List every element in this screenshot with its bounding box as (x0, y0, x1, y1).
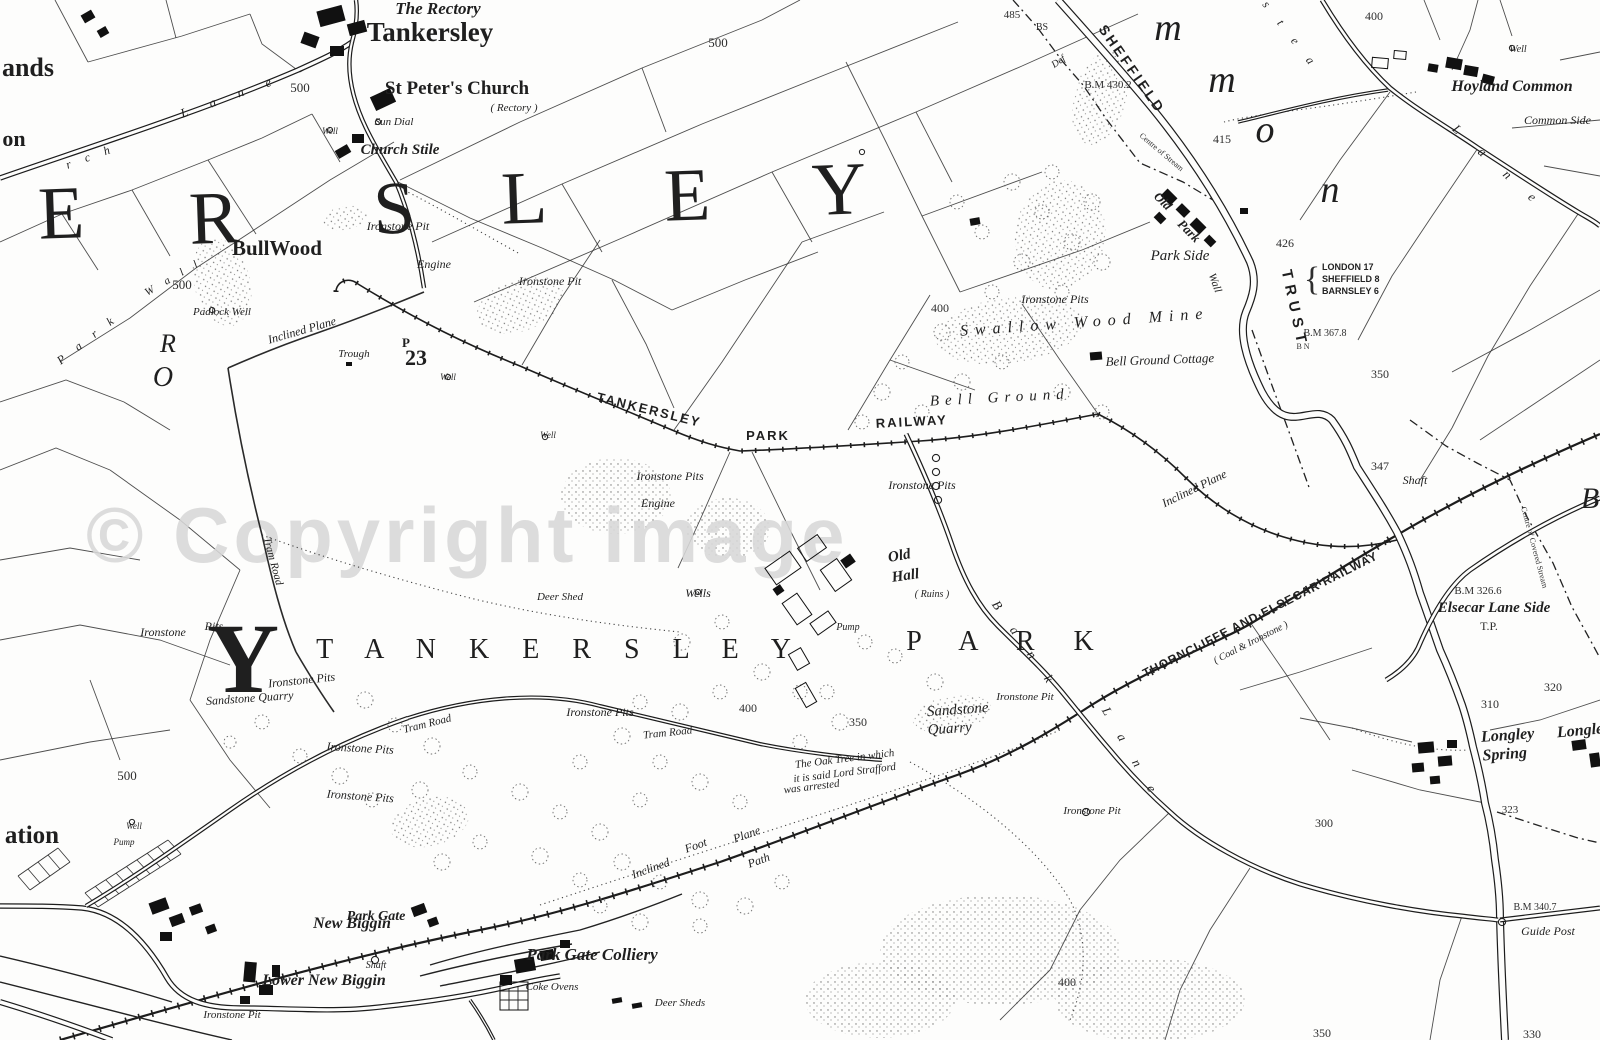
map-label: Park Side (1150, 248, 1210, 264)
map-label: Ironstone Pits (887, 478, 956, 492)
map-label: 300 (1315, 816, 1333, 830)
map-label: Well (322, 126, 338, 136)
map-label: The Rectory (395, 0, 481, 18)
map-label: Ironstone Pits (635, 469, 704, 483)
map-label: Padlock Well (192, 306, 251, 318)
map-label: 23 (405, 345, 427, 370)
map-label: ands (2, 53, 54, 82)
map-label: ( Rectory ) (490, 102, 537, 114)
map-label: B.M 340.7 (1513, 902, 1556, 913)
map-label: Engine (416, 257, 452, 271)
map-label: 350 (1313, 1026, 1331, 1040)
map-label: E (663, 153, 712, 238)
os-map: © Copyright image The RectoryTankersleyS… (0, 0, 1600, 1040)
map-label: Y (811, 147, 868, 232)
map-label: S (372, 166, 417, 250)
map-label: Coke Ovens (526, 981, 579, 993)
map-label: 485 (1004, 9, 1021, 21)
map-label: Ironstone Pit (995, 691, 1054, 703)
map-label: BS (1036, 22, 1048, 33)
map-label: 347 (1371, 459, 1389, 473)
map-label: Common Side (1524, 113, 1592, 127)
building (240, 996, 250, 1004)
map-label: Sun Dial (375, 116, 414, 128)
stipple-area (1055, 958, 1245, 1040)
map-label: 426 (1276, 236, 1294, 250)
building (1447, 740, 1457, 748)
map-label: St Peter's Church (385, 78, 530, 99)
map-label: B.M 326.6 (1454, 585, 1502, 597)
map-label: 323 (1502, 804, 1519, 816)
map-label: Elsecar Lane Side (1437, 600, 1551, 616)
map-label: on (2, 126, 25, 151)
map-label: 350 (1371, 367, 1389, 381)
building (1418, 741, 1435, 753)
map-label: Trough (338, 348, 370, 360)
map-label: m (1208, 59, 1235, 101)
map-label: 400 (1058, 975, 1076, 989)
map-label: 400 (739, 701, 757, 715)
map-label: PARK (746, 428, 790, 443)
building (330, 46, 344, 56)
building (160, 932, 172, 941)
map-label: Pits (204, 619, 224, 633)
map-label: 350 (849, 715, 867, 729)
map-label: SHEFFIELD 8 (1322, 274, 1380, 284)
map-label: LONDON 17 (1322, 262, 1374, 272)
watermark: © Copyright image (86, 491, 849, 579)
map-label: T.P. (1480, 619, 1498, 633)
map-label: 500 (117, 768, 137, 783)
map-label: Longley (1555, 720, 1600, 742)
map-label: 330 (1523, 1027, 1541, 1040)
map-label: 500 (708, 35, 728, 50)
building (1438, 755, 1453, 766)
map-label: Ironstone (139, 625, 186, 639)
map-label: Ironstone Pits (1020, 292, 1089, 306)
map-label: 415 (1213, 132, 1231, 146)
map-label: Church Stile (361, 142, 440, 158)
map-label: Quarry (927, 719, 973, 738)
building (1589, 752, 1600, 767)
building (346, 362, 352, 366)
map-label: Park Gate (347, 909, 406, 924)
map-label: T A N K E R S L E Y (316, 634, 804, 665)
building (243, 962, 257, 983)
map-label: 500 (290, 80, 310, 95)
map-label: ( Ruins ) (915, 589, 950, 600)
map-label: Deer Shed (536, 591, 584, 603)
map-canvas: © Copyright image The RectoryTankersleyS… (0, 0, 1600, 1040)
map-label: BullWood (232, 236, 322, 260)
building (1430, 776, 1441, 785)
map-label: Well (1509, 44, 1527, 55)
building (1090, 351, 1103, 360)
map-label: Shaft (366, 960, 387, 971)
map-label: Wells (685, 586, 711, 600)
map-label: o (1256, 109, 1275, 151)
map-label: O (153, 362, 173, 393)
map-label: Guide Post (1521, 924, 1575, 938)
map-label: Well (126, 821, 142, 831)
map-label: Shaft (1403, 473, 1428, 487)
map-label: B (1581, 482, 1599, 515)
map-label: 310 (1481, 697, 1499, 711)
map-label: ation (5, 822, 59, 849)
map-label: Pump (835, 622, 859, 633)
building (500, 975, 512, 985)
map-label: B.M 367.8 (1303, 328, 1346, 339)
map-label: Well (540, 430, 556, 440)
map-label: E (37, 171, 86, 256)
map-label: Ironstone Pit (1062, 805, 1121, 817)
map-label: 400 (1365, 9, 1383, 23)
building (1427, 63, 1438, 73)
map-label: Spring (1482, 744, 1528, 764)
map-label: Ironstone Pit (518, 274, 582, 288)
map-label: n (1321, 169, 1340, 211)
map-label: Engine (640, 496, 676, 510)
map-label: Deer Sheds (654, 997, 705, 1009)
building (1240, 208, 1248, 214)
map-label: R (159, 329, 176, 358)
map-label: B N (1296, 342, 1309, 351)
map-label: 400 (931, 301, 949, 315)
map-label: Ironstone Pit (366, 219, 430, 233)
map-label: Tankersley (367, 17, 494, 47)
map-label: Well (440, 372, 456, 382)
map-label: Ironstone Pit (202, 1009, 261, 1021)
map-label: { (1304, 261, 1320, 298)
building (1412, 762, 1425, 772)
map-label: Pump (113, 837, 135, 847)
map-label: 320 (1544, 680, 1562, 694)
map-label: Ironstone Pits (565, 705, 634, 719)
building (1571, 739, 1586, 751)
stipple-area (805, 962, 955, 1038)
map-label: Park Gate Colliery (525, 945, 658, 964)
map-label: B.M 430.2 (1084, 79, 1131, 91)
map-label: Lower New Biggin (261, 972, 386, 989)
map-label: m (1154, 7, 1181, 49)
map-label: L (500, 156, 549, 241)
map-label: Hoyland Common (1450, 78, 1572, 95)
map-label: BARNSLEY 6 (1322, 286, 1379, 296)
